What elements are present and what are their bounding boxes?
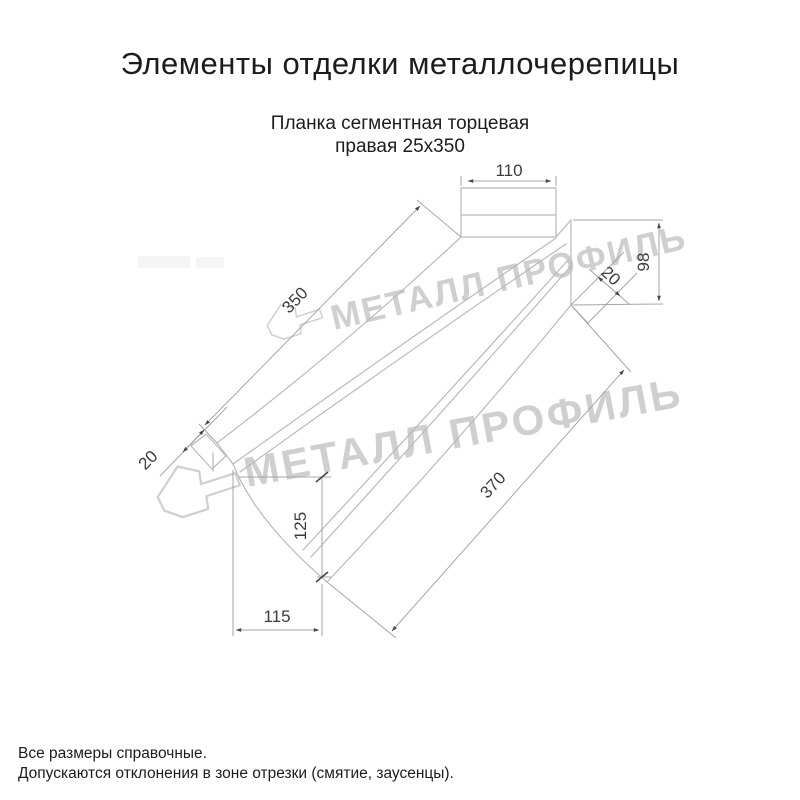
dimension-length-top: 350 [199,200,461,443]
dimension-125-label: 125 [291,512,310,540]
dimension-370-label: 370 [476,468,509,502]
top-tab [461,188,556,237]
dimension-20-left-label: 20 [135,447,162,474]
dimension-bottom-width: 115 [233,470,322,636]
top-right-edge [556,220,571,237]
brand-logo-icon [152,455,244,522]
catalog-page: Элементы отделки металлочерепицы Планка … [0,0,800,800]
top-edge [217,237,461,443]
product-outline [191,188,588,582]
dimension-top-width: 110 [461,161,556,186]
footer-note-2: Допускаются отклонения в зоне отрезки (с… [18,764,454,784]
left-end-top-edge [217,443,233,464]
footer-notes: Все размеры справочные. Допускаются откл… [18,744,454,784]
watermark-lower: МЕТАЛЛ ПРОФИЛЬ [152,368,686,521]
watermark-text: МЕТАЛЛ ПРОФИЛЬ [327,218,691,338]
technical-drawing: МЕТАЛЛ ПРОФИЛЬ МЕТАЛЛ ПРОФИЛЬ [0,0,800,800]
dimension-115-label: 115 [263,607,290,626]
faint-artifact [138,256,224,268]
footer-note-1: Все размеры справочные. [18,744,454,764]
dimension-98-label: 98 [634,253,653,272]
dimension-110-label: 110 [495,161,522,180]
dimension-350-label: 350 [278,283,311,317]
